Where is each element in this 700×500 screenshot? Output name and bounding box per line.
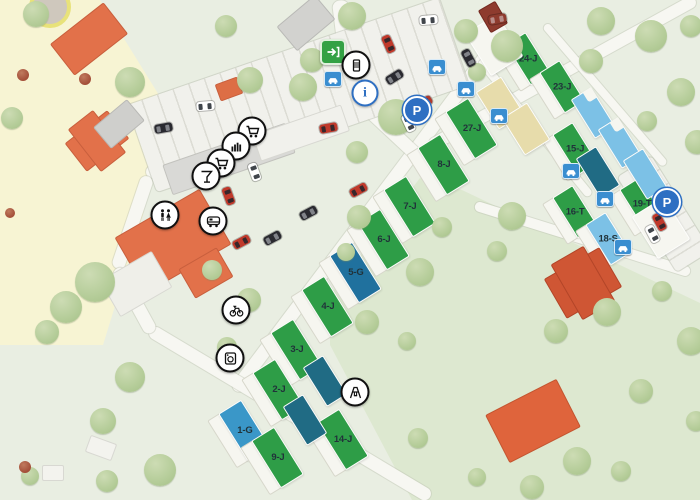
car-window xyxy=(330,124,334,131)
playground-icon[interactable] xyxy=(341,378,370,407)
pitch-label: 2-J xyxy=(272,384,285,395)
tree xyxy=(685,130,700,154)
car-window xyxy=(490,17,494,24)
pitch-label: 1-G xyxy=(237,425,252,436)
tree xyxy=(115,362,145,392)
tree xyxy=(677,327,700,355)
car xyxy=(419,15,438,26)
car xyxy=(231,234,251,250)
car-window xyxy=(407,124,414,130)
car-window xyxy=(226,198,233,203)
car-window xyxy=(651,235,658,241)
car xyxy=(298,205,318,221)
tree xyxy=(563,447,591,475)
car-window xyxy=(647,227,654,233)
tree xyxy=(587,7,615,35)
tree xyxy=(637,111,657,131)
tree xyxy=(144,454,176,486)
tree xyxy=(593,298,621,326)
tree xyxy=(355,310,379,334)
car-window xyxy=(463,51,470,57)
car-window xyxy=(273,233,279,240)
car xyxy=(348,182,368,198)
tree xyxy=(347,205,371,229)
car-window xyxy=(386,46,393,52)
info-icon[interactable]: i xyxy=(352,80,379,107)
car xyxy=(221,186,236,206)
tree xyxy=(579,49,603,73)
car-window xyxy=(383,37,390,43)
tree xyxy=(1,107,23,129)
car-pitch-icon[interactable] xyxy=(490,108,508,124)
tree xyxy=(468,468,486,486)
camper-service-icon[interactable] xyxy=(199,207,228,236)
tree xyxy=(398,332,416,350)
car-window xyxy=(242,237,248,244)
tree xyxy=(635,20,667,52)
tree xyxy=(611,461,631,481)
tree xyxy=(491,30,523,62)
tree xyxy=(202,260,222,280)
pitch-label: 16-T xyxy=(566,206,585,217)
bush xyxy=(79,73,91,85)
tree xyxy=(520,475,544,499)
pitch-label: 6-J xyxy=(377,234,390,245)
tree xyxy=(337,243,355,261)
pitch-label: 15-J xyxy=(566,143,584,154)
car-window xyxy=(654,215,661,221)
car-window xyxy=(223,189,230,194)
pitch-label: 14-J xyxy=(333,434,351,445)
tree xyxy=(23,1,49,27)
car-window xyxy=(421,17,425,23)
pitch-label: 27-J xyxy=(462,123,480,134)
car-window xyxy=(265,237,271,244)
car-pitch-icon[interactable] xyxy=(457,81,475,97)
tree xyxy=(680,15,700,37)
tree xyxy=(498,202,526,230)
tree xyxy=(338,2,366,30)
car-pitch-icon[interactable] xyxy=(596,191,614,207)
laundry-icon[interactable] xyxy=(216,344,245,373)
bush xyxy=(19,461,31,473)
car-window xyxy=(249,165,256,170)
tree xyxy=(408,428,428,448)
car-window xyxy=(351,189,357,196)
car-pitch-icon[interactable] xyxy=(428,59,446,75)
tree xyxy=(96,470,118,492)
bush xyxy=(17,69,29,81)
tree xyxy=(406,258,434,286)
white-shed-sw1 xyxy=(85,435,117,461)
car-window xyxy=(207,102,211,108)
pitch-label: 9-J xyxy=(271,452,284,463)
tree xyxy=(35,320,59,344)
restrooms-icon[interactable] xyxy=(151,201,180,230)
tree xyxy=(237,67,263,93)
tree xyxy=(289,73,317,101)
campsite-map[interactable]: 27-J8-J7-J6-J5-G4-J3-J2-J1-G9-J14-J24-J2… xyxy=(0,0,700,500)
car-window xyxy=(387,76,393,83)
parking-icon[interactable]: P xyxy=(653,188,681,216)
car-window xyxy=(499,15,503,22)
car xyxy=(196,101,215,112)
tree xyxy=(544,319,568,343)
car-window xyxy=(430,16,434,22)
car-window xyxy=(198,103,202,109)
car-window xyxy=(301,212,307,219)
barrier-gate-icon[interactable] xyxy=(342,51,371,80)
tree xyxy=(115,67,145,97)
tree xyxy=(75,262,115,302)
pitch-label: 3-J xyxy=(290,344,303,355)
pitch-label: 5-G xyxy=(348,267,363,278)
parking-icon[interactable]: P xyxy=(403,96,431,124)
car-window xyxy=(309,208,315,215)
pitch-label: 7-J xyxy=(403,201,416,212)
car-pitch-icon[interactable] xyxy=(562,163,580,179)
bicycle-icon[interactable] xyxy=(222,296,251,325)
tree xyxy=(487,241,507,261)
car-window xyxy=(321,126,325,133)
pitch-label: 8-J xyxy=(437,159,450,170)
white-shed-sw2 xyxy=(42,465,64,481)
car-window xyxy=(395,71,401,78)
tree xyxy=(50,291,82,323)
car-window xyxy=(234,241,240,248)
car xyxy=(262,230,282,246)
tree xyxy=(432,217,452,237)
tree xyxy=(215,15,237,37)
tree xyxy=(454,19,478,43)
car-window xyxy=(252,174,259,179)
tree xyxy=(629,379,653,403)
car-window xyxy=(156,126,160,133)
car-pitch-icon[interactable] xyxy=(324,71,342,87)
car-pitch-icon[interactable] xyxy=(614,239,632,255)
car-window xyxy=(467,59,474,65)
pitch-label: 4-J xyxy=(321,301,334,312)
tree xyxy=(667,78,695,106)
tree xyxy=(346,141,368,163)
pitch-label: 23-J xyxy=(553,81,571,92)
car-window xyxy=(165,124,169,131)
tree xyxy=(686,411,700,431)
car-window xyxy=(658,223,665,229)
car-window xyxy=(359,185,365,192)
tree xyxy=(90,408,116,434)
bush xyxy=(5,208,15,218)
tree xyxy=(652,281,672,301)
bar-icon[interactable] xyxy=(192,162,221,191)
